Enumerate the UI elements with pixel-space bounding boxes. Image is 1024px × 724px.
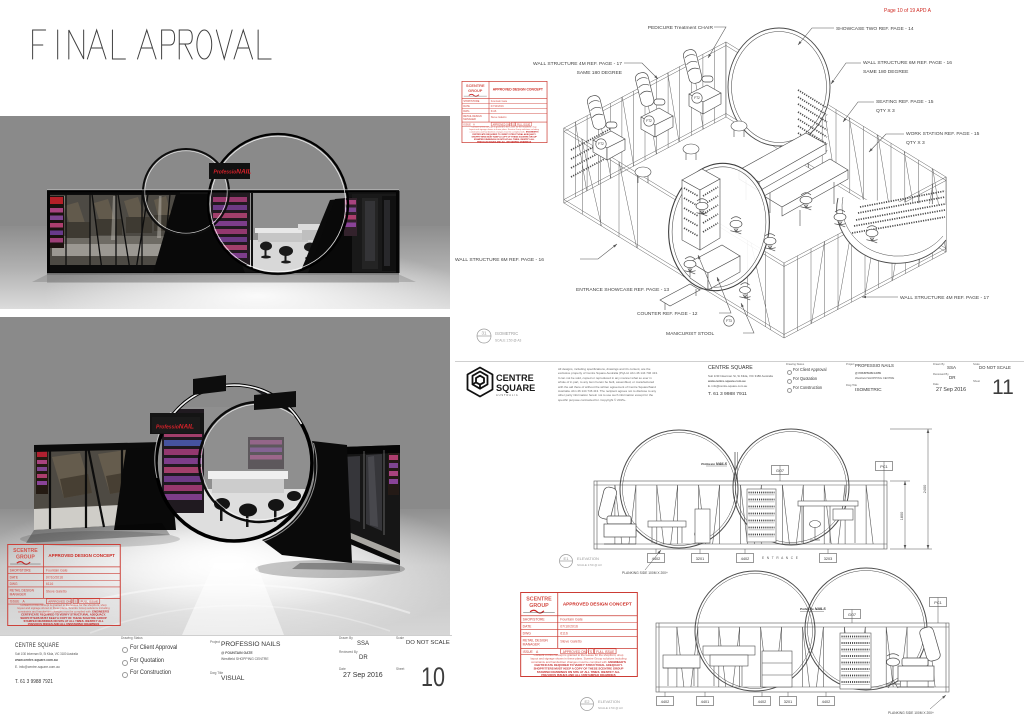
svg-text:4402: 4402 xyxy=(661,700,669,704)
svg-text:FT3: FT3 xyxy=(726,319,732,323)
svg-text:SAME 180 DEGREE: SAME 180 DEGREE xyxy=(863,69,909,75)
svg-text:QTY X 3: QTY X 3 xyxy=(906,140,925,146)
svg-text:4402: 4402 xyxy=(741,557,749,561)
svg-text:MANICURIST STOOL: MANICURIST STOOL xyxy=(666,331,714,337)
svg-text:1800: 1800 xyxy=(900,512,904,520)
svg-text:FT2: FT2 xyxy=(598,142,604,146)
svg-text:ENTRANCE SHOWCASE REF. PAGE -: ENTRANCE SHOWCASE REF. PAGE - 13 xyxy=(576,287,669,293)
svg-text:SAME 180 DEGREE: SAME 180 DEGREE xyxy=(577,70,623,76)
svg-text:WALL STRUCTURE 4M REF. PAGE -: WALL STRUCTURE 4M REF. PAGE - 17 xyxy=(900,295,989,301)
svg-text:ELEVATION: ELEVATION xyxy=(577,556,599,561)
svg-text:2400: 2400 xyxy=(923,485,927,493)
svg-text:SCALE 1:50 @ A3: SCALE 1:50 @ A3 xyxy=(577,563,602,567)
svg-text:WALL STRUCTURE 6M REF. PAGE -: WALL STRUCTURE 6M REF. PAGE - 16 xyxy=(455,257,544,263)
svg-text:WALL STRUCTURE 4M REF. PAGE -: WALL STRUCTURE 4M REF. PAGE - 17 xyxy=(533,61,622,67)
svg-text:COUNTER REF. PAGE - 12: COUNTER REF. PAGE - 12 xyxy=(637,311,698,317)
svg-text:3201: 3201 xyxy=(784,700,792,704)
svg-text:AUSTRALIA: AUSTRALIA xyxy=(496,393,519,397)
svg-text:ProfessioNAIL: ProfessioNAIL xyxy=(214,169,252,176)
svg-text:31: 31 xyxy=(481,331,487,336)
svg-text:Professio NAILS: Professio NAILS xyxy=(800,607,826,611)
svg-text:WORK STATION REF. PAGE - 15: WORK STATION REF. PAGE - 15 xyxy=(906,131,980,137)
svg-text:E2: E2 xyxy=(585,699,591,704)
svg-text:WALL STRUCTURE 6M REF. PAGE -: WALL STRUCTURE 6M REF. PAGE - 16 xyxy=(863,60,952,66)
svg-text:3203: 3203 xyxy=(824,557,832,561)
svg-text:FT2: FT2 xyxy=(646,119,652,123)
svg-text:E1: E1 xyxy=(564,556,570,561)
svg-text:Professio NAILS: Professio NAILS xyxy=(701,462,727,466)
svg-text:CENTRE: CENTRE xyxy=(496,373,534,383)
svg-text:PEDICURE Treatment CHAIR: PEDICURE Treatment CHAIR xyxy=(648,25,714,31)
svg-text:FT2: FT2 xyxy=(694,96,700,100)
svg-text:SCALE 1:50 @ A3: SCALE 1:50 @ A3 xyxy=(598,706,623,710)
svg-text:QTY X 3: QTY X 3 xyxy=(876,108,895,114)
svg-text:SCALE 1:50 @ A3: SCALE 1:50 @ A3 xyxy=(495,339,521,343)
svg-text:4402: 4402 xyxy=(758,700,766,704)
svg-text:ProfessioNAIL: ProfessioNAIL xyxy=(156,424,194,431)
svg-text:4401: 4401 xyxy=(701,700,709,704)
svg-text:SQUARE: SQUARE xyxy=(496,383,535,393)
svg-text:SHOWCASE TWO REF. PAGE - 14: SHOWCASE TWO REF. PAGE - 14 xyxy=(836,26,914,32)
svg-text:3201: 3201 xyxy=(696,557,704,561)
svg-text:PLANKING SIDE 100M X 200+: PLANKING SIDE 100M X 200+ xyxy=(622,571,668,575)
svg-text:SEATING REF. PAGE - 15: SEATING REF. PAGE - 15 xyxy=(876,99,934,105)
svg-text:PLANKING SIDE 100M X 200+: PLANKING SIDE 100M X 200+ xyxy=(888,711,934,715)
svg-text:E N T R A N C E: E N T R A N C E xyxy=(762,556,799,560)
svg-text:4402: 4402 xyxy=(822,700,830,704)
svg-text:ELEVATION: ELEVATION xyxy=(598,699,620,704)
svg-text:ISOMETRIC: ISOMETRIC xyxy=(495,331,518,336)
